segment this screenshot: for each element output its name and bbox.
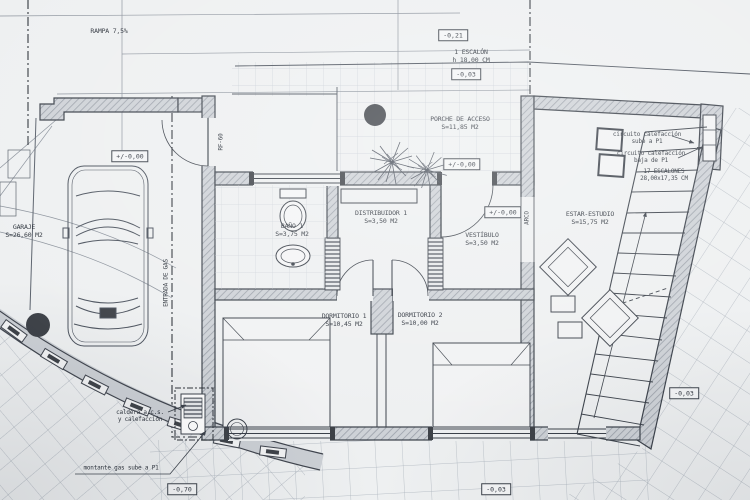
room-label-dormitorio2: DORMITORIO 2S=10,00 M2 (398, 312, 443, 328)
side-table (551, 296, 575, 312)
mid-wall-east (428, 289, 534, 300)
bed-1 (223, 318, 330, 427)
room-label-garaje: GARAJES=26,60 M2 (5, 224, 42, 240)
ramp-label: RAMPA 7,5% (90, 28, 127, 36)
circuit-down-note: circuito calefacciónbaja de P1 (617, 150, 685, 164)
window-bedroom2 (428, 426, 535, 441)
level-porch: +/-0,00 (443, 158, 480, 170)
vestibule-sliding-door (428, 238, 443, 290)
bath-sliding-door (325, 238, 340, 290)
bath-east-wall (327, 185, 338, 240)
arco-opening (520, 197, 535, 262)
room-label-dormitorio1: DORMITORIO 1S=10,45 M2 (322, 313, 367, 329)
floor-plan-drawing (0, 0, 750, 500)
room-label-porche: PORCHE DE ACCESOS=11,85 M2 (430, 116, 489, 132)
rf60-label: RF-60 (217, 133, 224, 150)
bath-tiles (215, 185, 327, 289)
caldera-note: caldera a.c.s.y calefacción (116, 409, 164, 423)
arco-label: ARCO (523, 211, 530, 225)
room-label-distribuidor: DISTRIBUIDOR 1S=3,50 M2 (355, 210, 407, 226)
stair-count-note: 17 ESCALONES28,00x17,35 CM (640, 168, 688, 182)
gas-entry-label: ENTRADA DE GAS (162, 259, 169, 307)
bed-2 (433, 343, 530, 427)
window-stair-corner (703, 115, 716, 161)
level-bottom-terrace: -0,03 (481, 483, 511, 495)
window-top (249, 171, 345, 186)
level-right-terrace: -0,03 (669, 387, 699, 399)
toilet-tank (280, 189, 306, 198)
level-ramp: -0,21 (438, 29, 468, 41)
room-label-estar: ESTAR-ESTUDIOS=15,75 M2 (566, 211, 614, 227)
circuit-up-note: circuito calefacciónsube a P1 (613, 131, 681, 145)
mid-wall (215, 289, 337, 300)
level-top-terrace: -0,03 (451, 68, 481, 80)
distributor-east-wall (430, 185, 441, 240)
room-label-bano: BAÑO 1S=3,75 M2 (275, 223, 308, 239)
column-marker (364, 104, 386, 126)
room-label-vestibulo: VESTÍBULOS=3,50 M2 (465, 232, 498, 248)
floor-plan-sheet: RAMPA 7,5% -0,21 1 ESCALÓNh 18,00 CM -0,… (0, 0, 750, 500)
level-vestibule: +/-0,00 (484, 206, 521, 218)
montante-note: montante gas sube a P1 (83, 464, 158, 471)
level-garage: +/-0,00 (111, 150, 148, 162)
step-note: 1 ESCALÓNh 18,00 CM (452, 49, 489, 65)
lobby-corner-wall (178, 98, 204, 112)
level-lower-garden: -0,70 (167, 483, 197, 495)
bathroom (215, 185, 327, 289)
bedroom-divider-pier (371, 289, 393, 334)
license-plate (100, 308, 116, 318)
side-table (558, 322, 582, 338)
column-marker (26, 313, 50, 337)
